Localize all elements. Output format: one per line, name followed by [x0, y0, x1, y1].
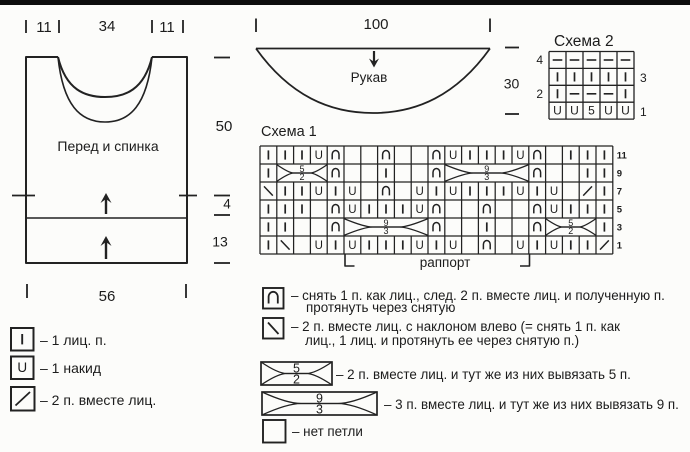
svg-text:Схема 2: Схема 2 — [554, 33, 614, 50]
svg-text:3: 3 — [383, 226, 388, 236]
svg-text:11: 11 — [36, 19, 52, 36]
svg-text:U: U — [315, 150, 323, 162]
svg-text:– нет петли: – нет петли — [292, 424, 363, 439]
svg-text:U: U — [449, 150, 457, 162]
svg-text:U: U — [516, 150, 524, 162]
svg-text:3: 3 — [484, 172, 489, 182]
svg-text:U: U — [415, 186, 423, 198]
svg-text:– 1 лиц. п.: – 1 лиц. п. — [40, 332, 107, 348]
svg-text:U: U — [415, 204, 423, 216]
svg-text:U: U — [621, 104, 630, 118]
svg-text:U: U — [348, 204, 356, 216]
svg-text:– 2 п. вместе лиц.: – 2 п. вместе лиц. — [40, 392, 156, 408]
svg-text:U: U — [348, 240, 356, 252]
svg-text:9: 9 — [617, 169, 622, 180]
svg-text:5: 5 — [617, 205, 623, 216]
svg-text:2: 2 — [568, 226, 573, 236]
svg-text:34: 34 — [99, 18, 116, 35]
svg-text:– 2 п. вместе лиц. и тут же из: – 2 п. вместе лиц. и тут же из них вывяз… — [336, 367, 631, 382]
svg-text:7: 7 — [617, 187, 622, 198]
svg-text:U: U — [604, 104, 613, 118]
svg-text:U: U — [516, 240, 524, 252]
svg-text:3: 3 — [617, 223, 622, 234]
svg-text:U: U — [348, 186, 356, 198]
svg-text:U: U — [415, 240, 423, 252]
svg-text:13: 13 — [212, 234, 228, 250]
svg-text:2: 2 — [293, 373, 300, 387]
svg-text:U: U — [315, 186, 323, 198]
svg-text:– 2 п. вместе лиц. с наклоном: – 2 п. вместе лиц. с наклоном влево (= с… — [291, 319, 620, 334]
svg-text:раппорт: раппорт — [420, 255, 471, 270]
svg-text:4: 4 — [536, 53, 543, 67]
svg-text:11: 11 — [159, 19, 175, 36]
svg-text:11: 11 — [617, 151, 628, 162]
svg-text:U: U — [550, 240, 558, 252]
svg-text:56: 56 — [99, 288, 116, 305]
svg-text:4: 4 — [223, 197, 231, 212]
svg-text:1: 1 — [617, 241, 623, 252]
svg-text:5: 5 — [588, 104, 595, 118]
svg-text:U: U — [315, 240, 323, 252]
svg-text:100: 100 — [363, 16, 388, 33]
svg-text:Схема 1: Схема 1 — [261, 124, 317, 140]
svg-text:U: U — [516, 186, 524, 198]
svg-text:2: 2 — [299, 172, 304, 182]
svg-text:30: 30 — [504, 76, 520, 92]
svg-text:– 1 накид: – 1 накид — [40, 360, 101, 376]
svg-text:U: U — [570, 104, 579, 118]
svg-text:– 3 п. вместе лиц. и тут же из: – 3 п. вместе лиц. и тут же из них вывяз… — [384, 397, 679, 412]
svg-text:3: 3 — [316, 403, 323, 417]
svg-text:1: 1 — [640, 105, 647, 119]
svg-text:U: U — [449, 240, 457, 252]
svg-text:лиц., 1 лиц. и протянуть ее че: лиц., 1 лиц. и протянуть ее через снятую… — [305, 333, 579, 348]
svg-text:3: 3 — [640, 71, 647, 85]
svg-text:Перед и спинка: Перед и спинка — [57, 138, 158, 154]
svg-text:U: U — [550, 204, 558, 216]
svg-text:протянуть через снятую: протянуть через снятую — [306, 300, 455, 315]
svg-text:U: U — [553, 104, 562, 118]
svg-text:2: 2 — [536, 87, 543, 101]
svg-text:U: U — [17, 360, 27, 375]
svg-text:U: U — [449, 186, 457, 198]
svg-text:50: 50 — [216, 118, 233, 135]
svg-text:U: U — [550, 186, 558, 198]
svg-text:Рукав: Рукав — [351, 70, 388, 85]
